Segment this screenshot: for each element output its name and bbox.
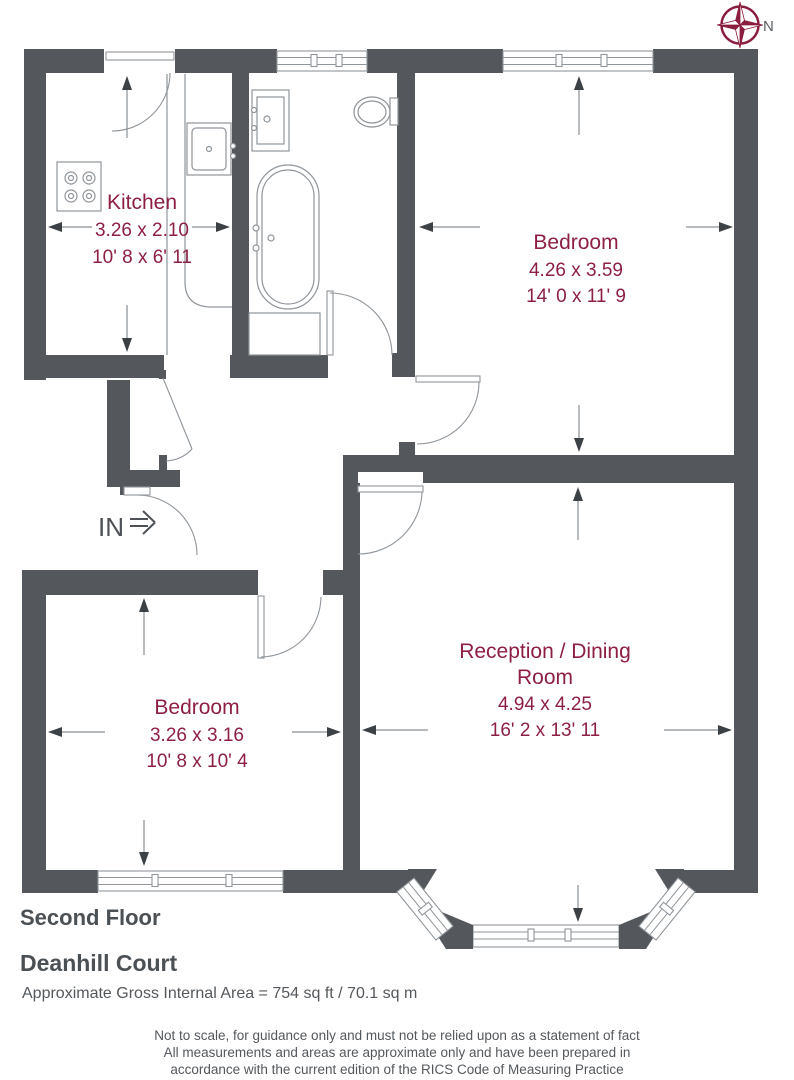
reception-label-line2: Room — [517, 666, 573, 689]
kitchen-door-glazing — [106, 52, 174, 60]
entrance-label: IN — [98, 512, 124, 542]
disclaimer-line1: Not to scale, for guidance only and must… — [154, 1028, 640, 1043]
bedroom2-door — [258, 596, 321, 658]
toilet-icon — [354, 97, 398, 127]
bay-window-bottom — [473, 925, 619, 947]
bedroom1-dim-imperial: 14' 0 x 11' 9 — [526, 286, 626, 307]
bedroom2-dim-metric: 3.26 x 3.16 — [150, 725, 244, 746]
windows — [98, 51, 695, 949]
kitchen-label: Kitchen — [107, 191, 177, 214]
north-label: N — [763, 18, 774, 35]
bedroom1-dim-metric: 4.26 x 3.59 — [529, 260, 623, 281]
reception-dim-imperial: 16' 2 x 13' 11 — [490, 720, 600, 741]
floor-label: Second Floor — [20, 905, 161, 930]
bath-icon — [253, 165, 319, 309]
bathroom-door — [327, 291, 392, 355]
kitchen-dim-metric: 3.26 x 2.10 — [95, 220, 189, 241]
basin-icon — [252, 90, 290, 151]
bedroom2-dim-imperial: 10' 8 x 10' 4 — [146, 751, 248, 772]
property-name: Deanhill Court — [20, 950, 178, 976]
bedroom1-label: Bedroom — [533, 231, 618, 254]
bedroom1-door — [416, 376, 480, 444]
floorplan-page: N Kitchen 3.26 x 2.10 10' 8 x 6' 11 Bedr… — [0, 0, 794, 1080]
compass-icon — [717, 2, 763, 48]
bedroom2-window — [98, 871, 283, 891]
vestibule-door — [163, 378, 192, 461]
bathroom-window — [277, 51, 367, 71]
entrance-arrow-icon — [130, 511, 155, 534]
vanity-icon — [249, 313, 320, 355]
kitchen-door-arc — [112, 73, 170, 131]
reception-door — [358, 486, 423, 554]
fixtures — [57, 74, 398, 355]
reception-label-line1: Reception / Dining — [459, 640, 631, 663]
disclaimer-line2: All measurements and areas are approxima… — [164, 1045, 631, 1060]
kitchen-dim-imperial: 10' 8 x 6' 11 — [92, 247, 192, 268]
kitchen-sink-icon — [187, 123, 236, 175]
reception-dim-metric: 4.94 x 4.25 — [498, 694, 592, 715]
hob-icon — [57, 162, 101, 211]
bay-window-right-side — [619, 869, 695, 949]
counter-curve — [185, 74, 232, 307]
disclaimer-line3: accordance with the current edition of t… — [170, 1062, 623, 1077]
floorplan-svg: N Kitchen 3.26 x 2.10 10' 8 x 6' 11 Bedr… — [0, 0, 794, 1080]
walls — [22, 49, 758, 893]
bedroom1-window — [503, 51, 653, 71]
entrance-door — [124, 487, 197, 555]
bedroom2-label: Bedroom — [154, 696, 239, 719]
area-text: Approximate Gross Internal Area = 754 sq… — [22, 985, 417, 1002]
bay-window-left-side — [397, 869, 473, 949]
